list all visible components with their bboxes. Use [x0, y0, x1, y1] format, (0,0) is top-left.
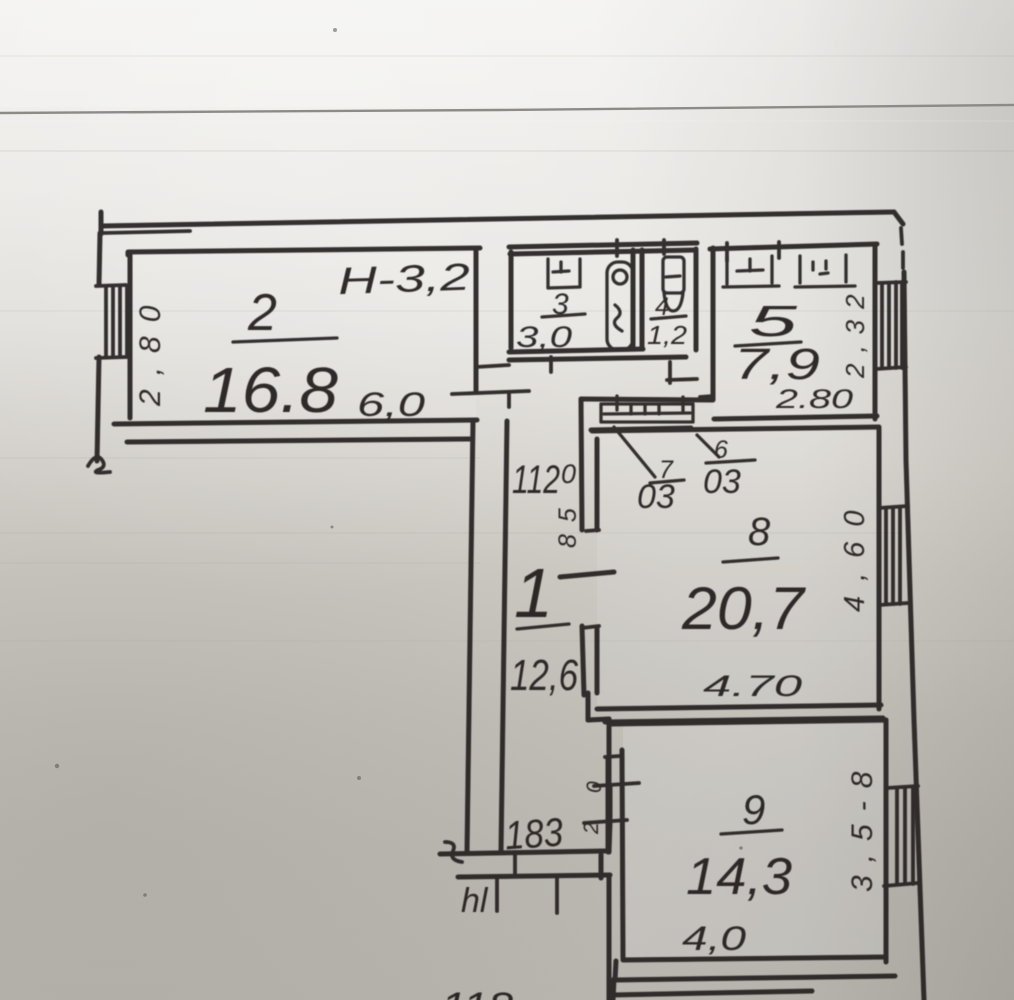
svg-text:118: 118 [441, 985, 514, 1000]
svg-text:0: 0 [561, 459, 576, 489]
svg-text:5: 5 [749, 297, 798, 346]
svg-text:20,7: 20,7 [681, 575, 807, 642]
svg-text:hl: hl [461, 882, 489, 920]
svg-text:2,32: 2,32 [840, 283, 870, 379]
svg-text:9: 9 [742, 786, 765, 833]
svg-text:12,6: 12,6 [510, 651, 578, 700]
svg-text:6: 6 [714, 436, 728, 464]
svg-text:03: 03 [637, 478, 675, 516]
svg-text:03: 03 [703, 463, 741, 501]
svg-text:2,80: 2,80 [134, 292, 167, 407]
svg-text:14,3: 14,3 [686, 848, 792, 906]
svg-text:85: 85 [554, 496, 582, 548]
svg-text:H-3,2: H-3,2 [337, 257, 470, 304]
svg-text:3,0: 3,0 [516, 321, 572, 354]
svg-text:3,5-8: 3,5-8 [846, 759, 879, 892]
svg-text:2.80: 2.80 [775, 384, 853, 414]
svg-text:2: 2 [247, 284, 277, 342]
svg-text:7,9: 7,9 [734, 340, 820, 389]
svg-text:16.8: 16.8 [203, 354, 338, 426]
svg-text:4,60: 4,60 [839, 496, 871, 612]
svg-text:1: 1 [514, 554, 553, 632]
svg-text:4.70: 4.70 [703, 670, 803, 703]
svg-text:1,2: 1,2 [647, 320, 688, 350]
svg-text:2: 2 [580, 822, 603, 835]
svg-text:0: 0 [583, 781, 606, 793]
svg-text:8: 8 [748, 510, 771, 554]
svg-text:4,0: 4,0 [682, 920, 746, 958]
svg-text:112: 112 [512, 458, 560, 502]
svg-text:6,0: 6,0 [357, 386, 425, 424]
